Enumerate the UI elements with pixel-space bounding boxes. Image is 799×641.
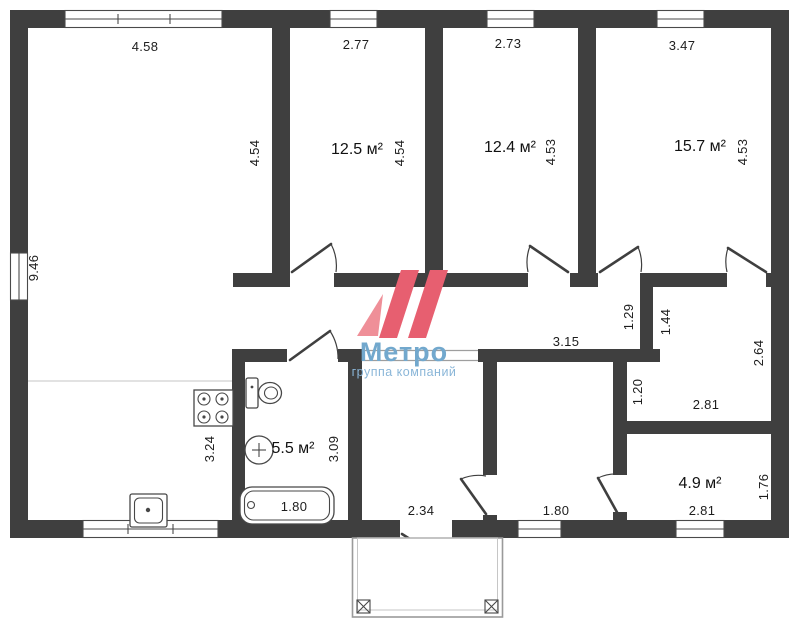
stove-icon — [194, 390, 233, 426]
dim-closet-total-height: 2.64 — [751, 340, 766, 367]
kitchen-sink-icon — [130, 494, 167, 527]
dim-back-room-height: 1.76 — [756, 474, 771, 501]
dim-living-inner-height: 4.54 — [247, 140, 262, 167]
area-bedroom3: 15.7 м² — [674, 138, 727, 155]
dim-bathroom-width: 1.80 — [281, 499, 308, 514]
dim-corridor-height: 1.29 — [621, 304, 636, 331]
window-back-room — [676, 521, 724, 538]
door-bedroom2 — [527, 246, 568, 272]
dim-middle-room-width: 1.80 — [543, 503, 570, 518]
door-bedroom3 — [600, 247, 642, 272]
dim-living-height: 9.46 — [26, 255, 41, 282]
washbasin-icon — [245, 436, 273, 464]
door-hall-middle-room — [461, 475, 486, 514]
dim-closet-lower-height: 1.20 — [630, 379, 645, 406]
watermark-subtitle: группа компаний — [352, 365, 457, 379]
dim-kitchen-zone-height: 3.24 — [202, 436, 217, 463]
window-bedroom1 — [330, 11, 377, 28]
area-bedroom1: 12.5 м² — [331, 141, 384, 158]
area-bedroom2: 12.4 м² — [484, 139, 537, 156]
floor-plan-canvas: 4.58 2.77 2.73 3.47 9.46 4.54 4.54 4.53 … — [0, 0, 799, 641]
area-back-room: 4.9 м² — [678, 475, 722, 492]
door-bedroom1 — [292, 244, 336, 272]
dim-closet-upper-height: 1.44 — [658, 309, 673, 336]
dim-living-width: 4.58 — [132, 39, 159, 54]
floor-plan-page: 4.58 2.77 2.73 3.47 9.46 4.54 4.54 4.53 … — [0, 0, 799, 641]
dim-bedroom1-height: 4.54 — [392, 140, 407, 167]
dim-bedroom1-width: 2.77 — [343, 37, 370, 52]
door-middle-back-room — [598, 474, 618, 514]
dim-bedroom3-width: 3.47 — [669, 38, 696, 53]
dim-hall-width: 2.34 — [408, 503, 435, 518]
watermark-brand: Метро — [360, 337, 448, 367]
dim-bedroom3-height: 4.53 — [735, 139, 750, 166]
area-bathroom: 5.5 м² — [271, 440, 315, 457]
dim-bedroom2-width: 2.73 — [495, 36, 522, 51]
window-bedroom2 — [487, 11, 534, 28]
dim-bedroom2-height: 4.53 — [543, 139, 558, 166]
dim-closet-width: 2.81 — [693, 397, 720, 412]
window-living-left — [11, 253, 28, 300]
entrance-porch — [353, 538, 503, 617]
dim-corridor-length: 3.15 — [553, 334, 580, 349]
window-bedroom3 — [657, 11, 704, 28]
door-closet — [726, 248, 766, 272]
dim-back-room-width: 2.81 — [689, 503, 716, 518]
window-middle-room — [518, 521, 561, 538]
walls — [10, 10, 789, 538]
dim-bathroom-height: 3.09 — [326, 436, 341, 463]
door-bathroom — [290, 331, 338, 360]
window-living-top — [65, 11, 222, 28]
toilet-icon — [246, 378, 282, 408]
